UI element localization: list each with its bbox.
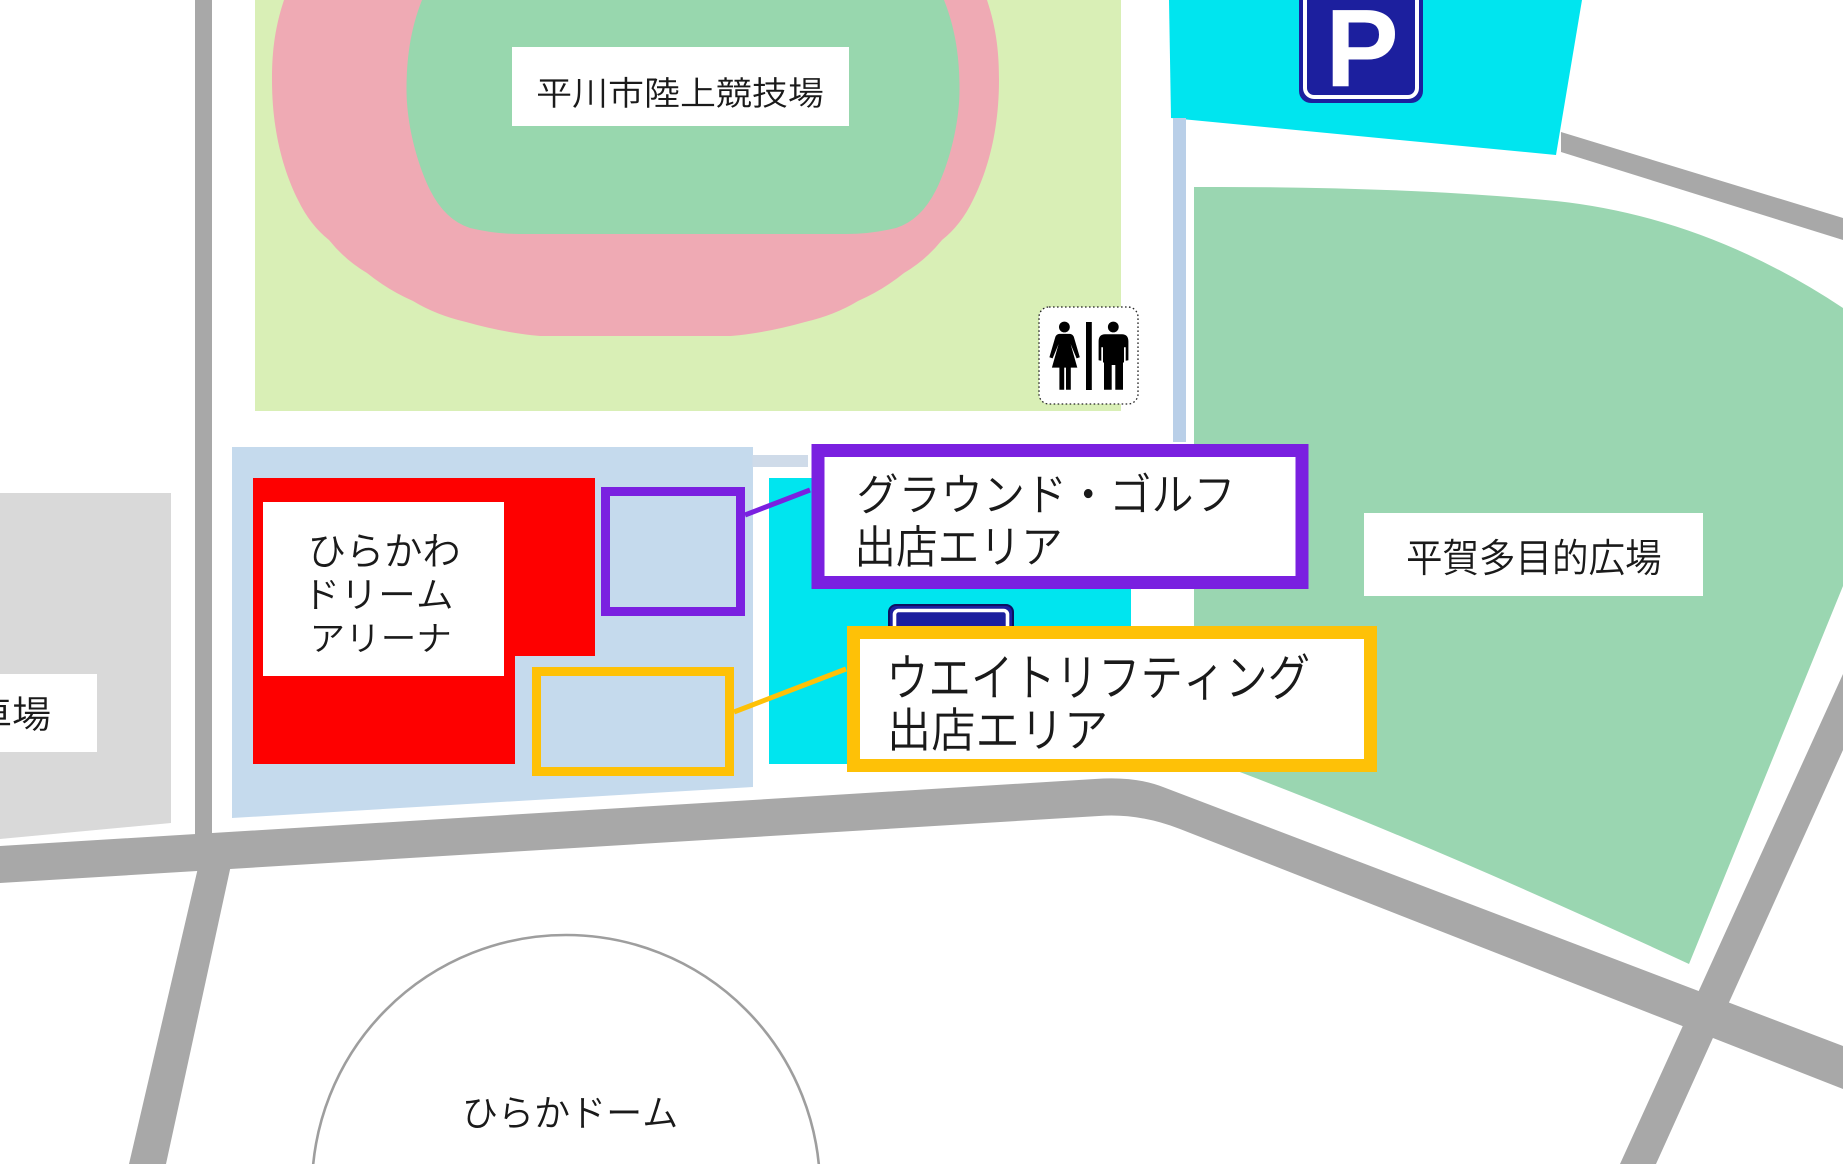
- svg-text:P: P: [1325, 0, 1398, 111]
